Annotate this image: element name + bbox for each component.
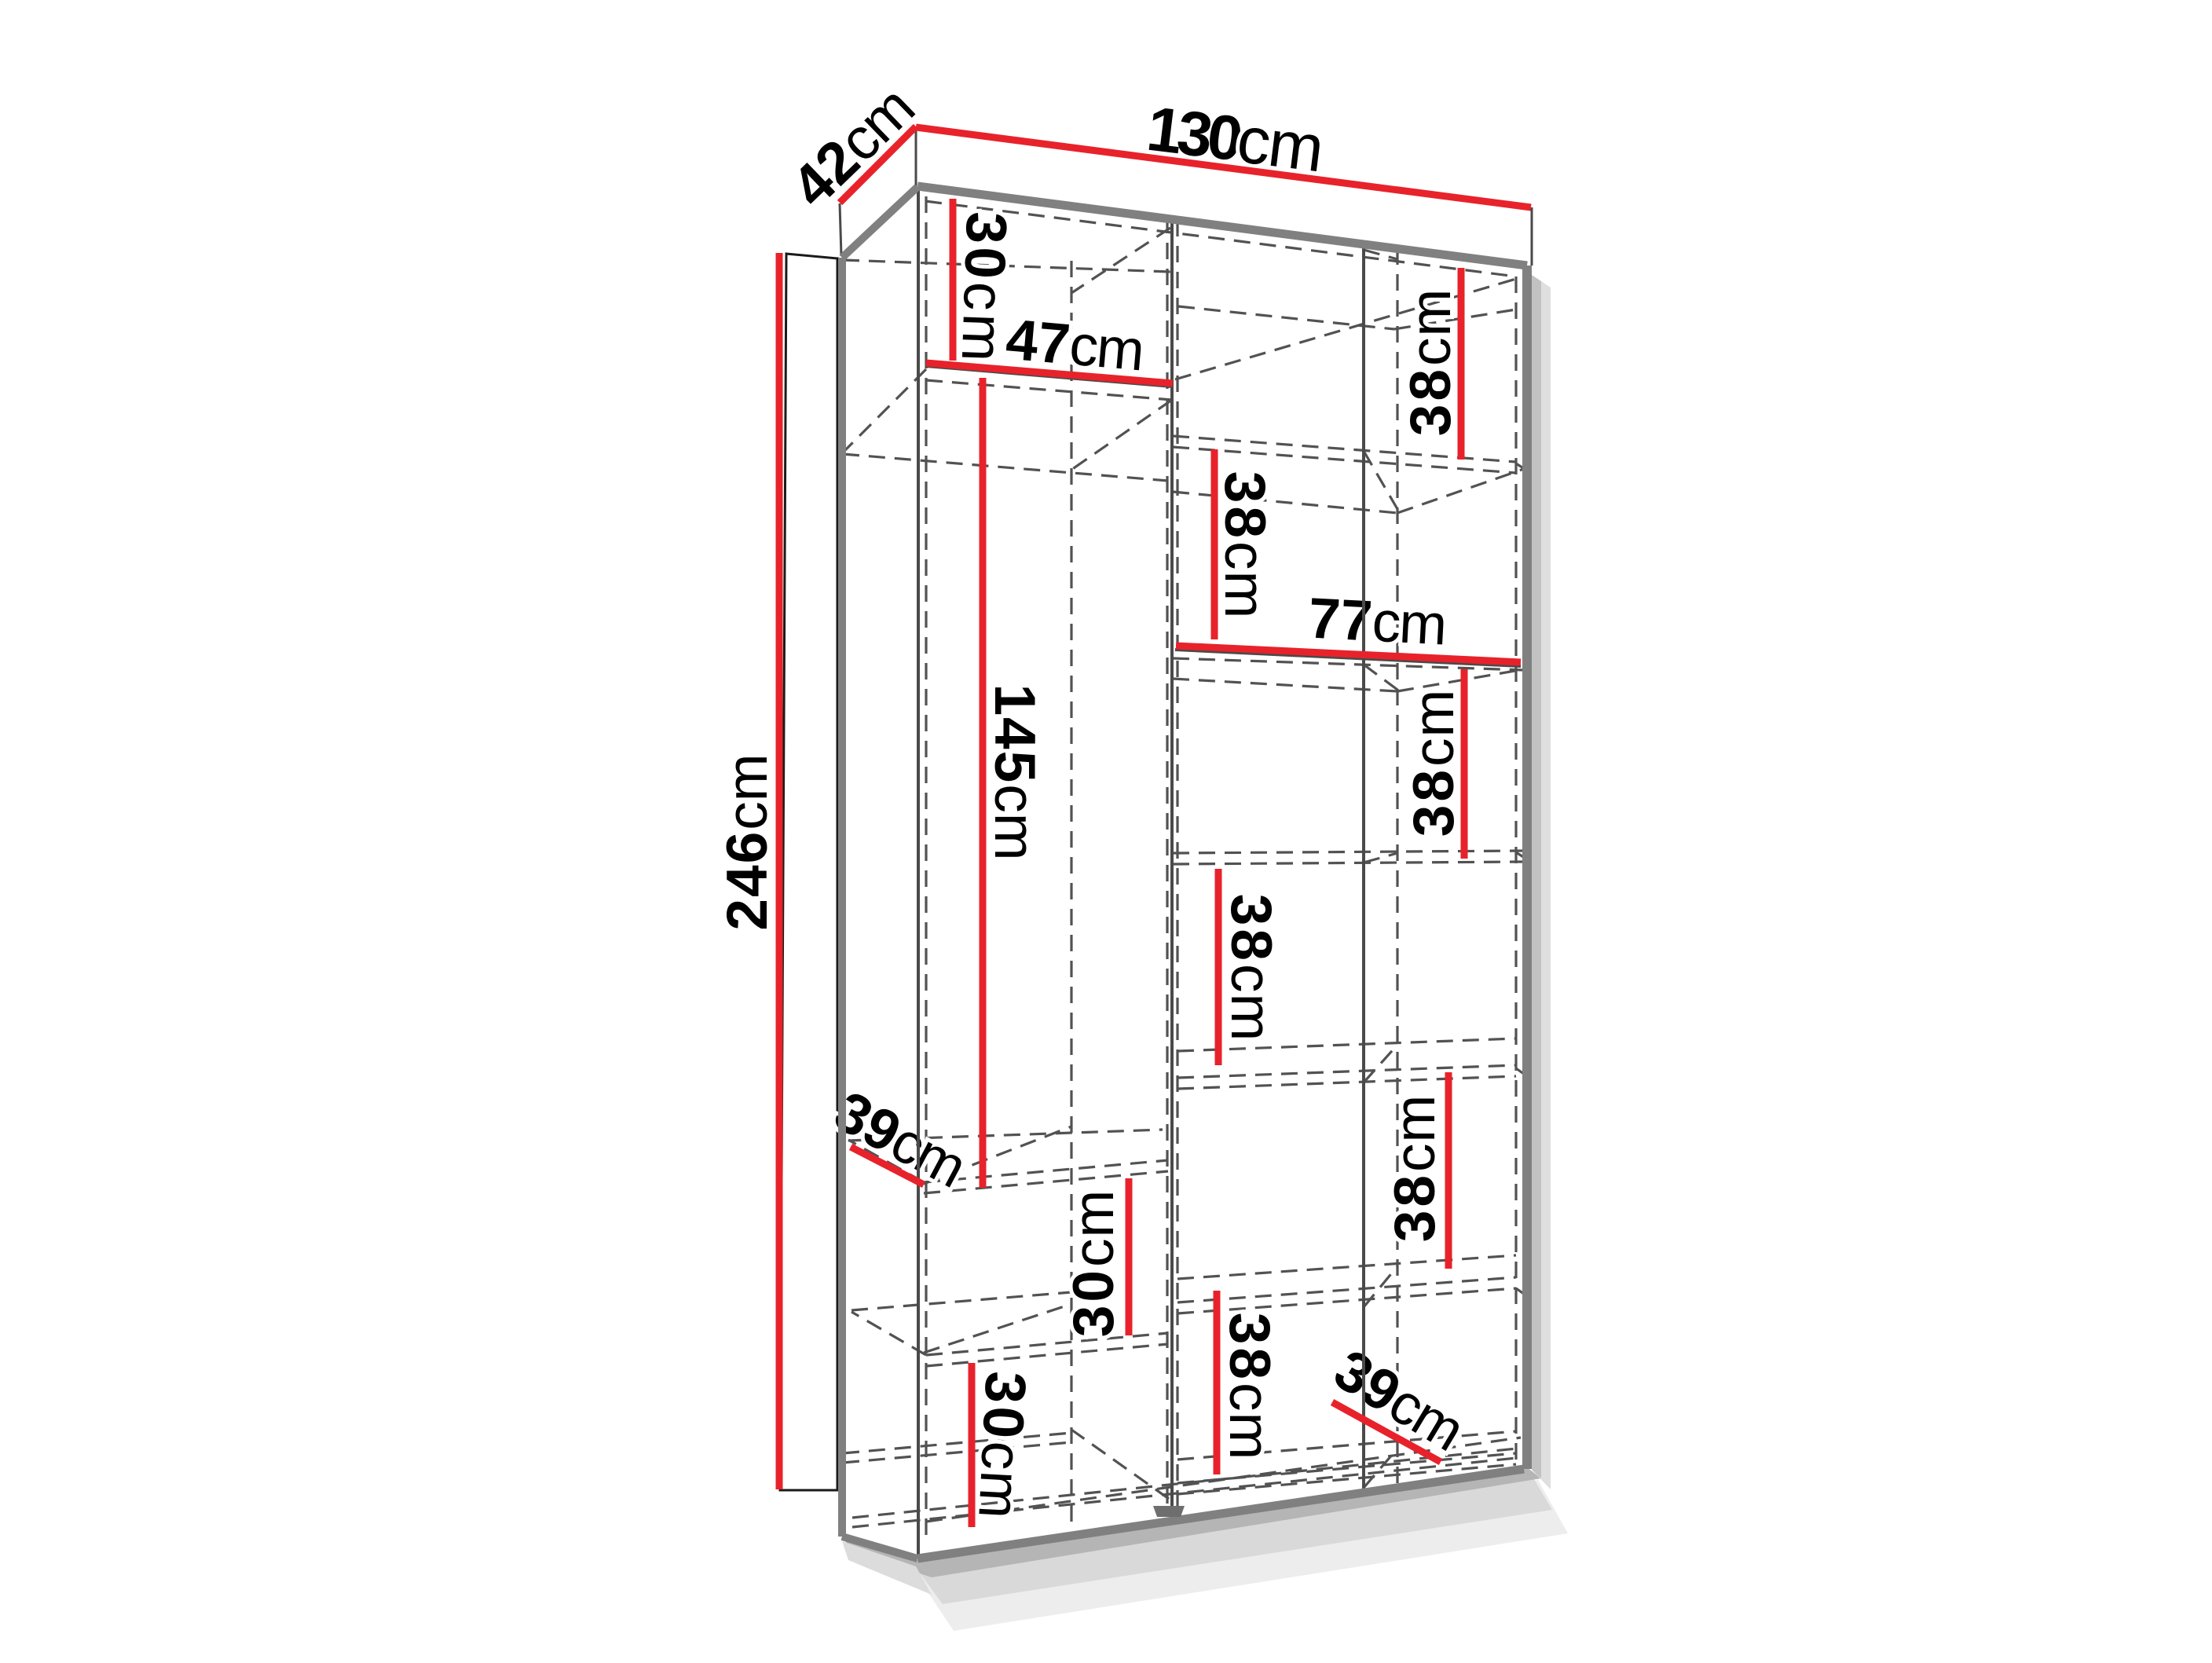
- svg-text:38cm: 38cm: [1399, 288, 1463, 437]
- svg-text:77cm: 77cm: [1307, 586, 1448, 657]
- svg-text:38cm: 38cm: [1214, 471, 1277, 620]
- svg-text:30cm: 30cm: [967, 1370, 1038, 1521]
- svg-text:30cm: 30cm: [1062, 1189, 1126, 1338]
- svg-text:38cm: 38cm: [1383, 1094, 1447, 1243]
- svg-text:246cm: 246cm: [716, 753, 779, 930]
- svg-text:145cm: 145cm: [983, 683, 1047, 860]
- svg-text:38cm: 38cm: [1402, 689, 1466, 837]
- svg-text:38cm: 38cm: [1220, 894, 1284, 1042]
- svg-text:38cm: 38cm: [1218, 1313, 1282, 1461]
